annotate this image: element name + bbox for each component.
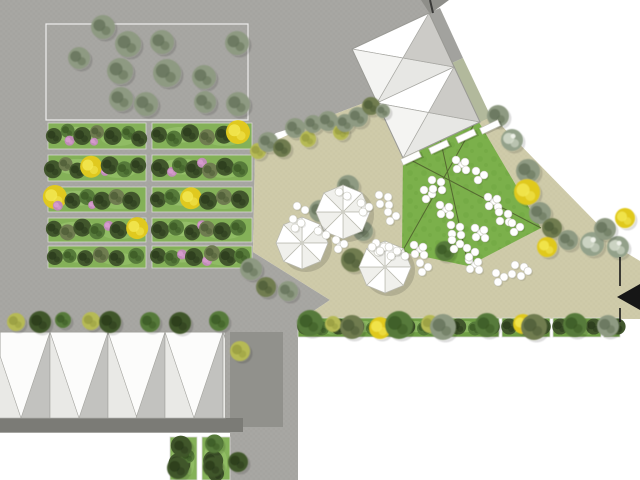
tree-canopy-shade <box>204 101 212 109</box>
tree-canopy-shade <box>218 320 226 328</box>
planting-bed <box>151 155 252 181</box>
shrub-shade <box>136 227 144 235</box>
chair <box>445 203 453 211</box>
shrub-shade <box>53 135 59 141</box>
tree-canopy-shade <box>444 250 452 258</box>
planting-bed <box>151 218 252 242</box>
chair <box>437 210 445 218</box>
tree-canopy-shade <box>181 446 189 454</box>
landscape-site-plan-canvas <box>0 0 640 480</box>
shrub-shade <box>158 134 164 140</box>
tree-canopy-shade <box>212 466 220 474</box>
planting-bed <box>43 185 146 212</box>
chair <box>386 217 394 225</box>
shrub-shade <box>52 169 59 176</box>
chair <box>334 245 342 253</box>
shrub-shade <box>67 130 72 135</box>
shrub-shade <box>191 232 197 238</box>
tree-canopy-shade <box>525 191 535 201</box>
chair <box>466 265 474 273</box>
tree-canopy-shade <box>202 76 211 85</box>
shrub-shade <box>69 255 74 260</box>
chair <box>436 201 444 209</box>
tree-canopy-shade <box>624 217 632 225</box>
chair <box>301 206 309 214</box>
tree-canopy-shade <box>62 319 68 325</box>
shrub-shade <box>157 199 163 205</box>
tree-canopy-shade <box>213 443 220 450</box>
chair <box>293 202 301 210</box>
shrub-shade <box>71 200 77 206</box>
chair <box>453 165 461 173</box>
chair <box>314 227 322 235</box>
chair <box>376 200 384 208</box>
shrub-shade <box>137 165 143 171</box>
shrub-shade <box>171 172 175 176</box>
chair <box>422 195 430 203</box>
chair <box>322 231 330 239</box>
shrub-shade <box>57 205 61 209</box>
tree-canopy-shade <box>160 41 169 50</box>
blossom-highlight <box>511 134 516 139</box>
tree-canopy-shade <box>526 170 535 179</box>
shrub-shade <box>237 227 243 233</box>
tree-canopy-shade <box>165 72 176 83</box>
shrub-shade <box>173 138 179 144</box>
tree-canopy-shade <box>332 323 338 329</box>
tree-canopy-shade <box>532 326 542 336</box>
tree-canopy-shade <box>126 43 136 53</box>
tree-canopy-shade <box>109 321 117 329</box>
planting-bed <box>46 217 148 242</box>
chair <box>289 215 297 223</box>
tree-canopy-shade <box>235 42 244 51</box>
shrub-shade <box>117 229 124 236</box>
shrub-shade <box>100 254 106 260</box>
chair <box>474 258 482 266</box>
tree-canopy-shade <box>237 461 245 469</box>
chair <box>335 188 343 196</box>
blossom-highlight <box>591 237 596 242</box>
tree-canopy-shade <box>257 150 263 156</box>
shrub-shade <box>171 196 177 202</box>
shrub-shade <box>239 169 245 175</box>
shrub-shade <box>96 132 101 137</box>
tree-canopy-shade <box>39 321 47 329</box>
chair <box>429 185 437 193</box>
chair <box>504 210 512 218</box>
chair <box>517 272 525 280</box>
chair <box>508 219 516 227</box>
chair <box>420 251 428 259</box>
chair <box>484 193 492 201</box>
chair <box>401 252 409 260</box>
tree-canopy-shade <box>15 321 22 328</box>
tree-canopy-shade <box>546 246 554 254</box>
shrub-shade <box>175 227 181 233</box>
tree-canopy-shade <box>90 320 97 327</box>
chair <box>448 236 456 244</box>
chair <box>461 158 469 166</box>
chair <box>420 186 428 194</box>
tree-canopy-shade <box>144 103 153 112</box>
shrub-shade <box>67 232 73 238</box>
chair <box>343 192 351 200</box>
canopy-building-south <box>0 332 252 432</box>
tree-canopy-shade <box>236 103 245 112</box>
shrub-shade <box>81 135 88 142</box>
chair <box>472 167 480 175</box>
shrub-shade <box>81 227 88 234</box>
shrub-shade <box>224 166 231 173</box>
chair <box>385 201 393 209</box>
chair <box>492 269 500 277</box>
shrub-shade <box>508 326 514 332</box>
chair <box>418 268 426 276</box>
shrub-shade <box>171 257 177 263</box>
tree-canopy-shade <box>281 147 288 154</box>
shrub-shade <box>193 256 200 263</box>
chair <box>384 208 392 216</box>
chair <box>457 231 465 239</box>
shrub-shade <box>94 141 97 144</box>
chair <box>511 261 519 269</box>
tree-canopy-shade <box>149 321 157 329</box>
chair <box>291 224 299 232</box>
umbrella-pole <box>383 265 387 269</box>
tree-canopy-shade <box>312 123 319 130</box>
tree-canopy-shade <box>287 290 295 298</box>
tree-canopy-shade <box>485 324 494 333</box>
chair <box>475 266 483 274</box>
chair <box>508 270 516 278</box>
shrub-shade <box>179 165 185 171</box>
tree-canopy-shade <box>350 326 359 335</box>
planting-bed <box>47 246 146 268</box>
planting-bed <box>150 245 252 268</box>
tree-canopy-shade <box>177 467 185 475</box>
chair <box>456 223 464 231</box>
shrub-shade <box>223 196 229 202</box>
shrub-shade <box>138 138 144 144</box>
chair <box>495 208 503 216</box>
shrub-shade <box>109 165 116 172</box>
shrub-shade <box>69 140 73 144</box>
chair <box>385 243 393 251</box>
chair <box>510 228 518 236</box>
tree-canopy-shade <box>370 105 377 112</box>
shrub-shade <box>239 199 246 206</box>
chair <box>357 199 365 207</box>
tree-canopy-shade <box>573 324 582 333</box>
shrub-shade <box>206 228 212 234</box>
shrub-shade <box>181 254 185 258</box>
tree-canopy-shade <box>327 120 335 128</box>
tree-canopy-shade <box>551 227 559 235</box>
tree <box>615 208 638 231</box>
tree-canopy-shade <box>344 122 351 129</box>
tree-canopy-shade <box>441 326 451 336</box>
shrub-shade <box>209 170 215 176</box>
chair <box>446 211 454 219</box>
shrub-shade <box>96 231 102 237</box>
shrub-shade <box>189 133 196 140</box>
shrub-shade <box>135 255 141 261</box>
blossom-highlight <box>617 241 622 246</box>
shrub-shade <box>116 257 122 263</box>
shrub-shade <box>236 131 245 140</box>
shrub-shade <box>101 200 108 207</box>
tree-canopy-shade <box>604 228 612 236</box>
tree-canopy-shade <box>511 139 519 147</box>
shrub-shade <box>54 256 60 262</box>
shrub-shade <box>227 256 234 263</box>
chair <box>438 186 446 194</box>
chair <box>450 245 458 253</box>
shrub-shade <box>159 229 166 236</box>
umbrella-pole <box>300 241 304 245</box>
shrub-shade <box>65 164 70 169</box>
shrub-shade <box>90 166 98 174</box>
tree-canopy-shade <box>101 26 110 35</box>
chair <box>462 166 470 174</box>
chair <box>472 233 480 241</box>
shrub-shade <box>211 253 217 259</box>
umbrella-pole <box>341 210 345 214</box>
shrub-shade <box>206 137 212 143</box>
tree-canopy-shade <box>590 243 599 252</box>
shrub-shade <box>159 167 166 174</box>
chair <box>410 241 418 249</box>
tree-canopy-shade <box>567 239 575 247</box>
shrub-shade <box>112 135 119 142</box>
shrub-shade <box>206 261 210 265</box>
tree-canopy-shade <box>307 138 313 144</box>
planting-bed <box>44 155 146 181</box>
chair <box>419 243 427 251</box>
tree-canopy-shade <box>294 127 302 135</box>
chair <box>387 252 395 260</box>
chair <box>494 278 502 286</box>
shrub-shade <box>130 200 137 207</box>
tree-canopy-shade <box>118 70 128 80</box>
tree-canopy-shade <box>308 322 318 332</box>
chair <box>481 234 489 242</box>
tree-canopy-shade <box>382 110 387 115</box>
shrub-shade <box>157 255 163 261</box>
shrub-shade <box>221 230 228 237</box>
shrub-shade <box>207 200 214 207</box>
chair <box>474 176 482 184</box>
chair <box>359 208 367 216</box>
chair <box>524 267 532 275</box>
shrub-shade <box>116 196 122 202</box>
shrub-shade <box>53 228 59 234</box>
tree-canopy-shade <box>78 57 86 65</box>
chair <box>384 193 392 201</box>
shrub-shade <box>84 257 90 263</box>
chair <box>376 247 384 255</box>
chair <box>332 236 340 244</box>
tree-canopy-shade <box>539 212 547 220</box>
shrub-shade <box>123 169 129 175</box>
tree-canopy-shade <box>397 324 408 335</box>
chair <box>428 176 436 184</box>
chair <box>471 224 479 232</box>
chair <box>368 243 376 251</box>
chair <box>416 259 424 267</box>
chair <box>493 195 501 203</box>
site-plan-page <box>0 0 640 480</box>
chair <box>375 191 383 199</box>
chair <box>452 156 460 164</box>
tree-canopy-shade <box>179 322 187 330</box>
tree-canopy-shade <box>265 286 273 294</box>
tree-canopy-shade <box>239 350 247 358</box>
chair <box>480 226 488 234</box>
chair <box>485 202 493 210</box>
chair <box>496 217 504 225</box>
tree-canopy-shade <box>617 246 625 254</box>
chair <box>447 221 455 229</box>
shrub-shade <box>193 169 200 176</box>
planting-bed <box>150 187 252 212</box>
planting-bed <box>46 123 147 149</box>
shrub-shade <box>190 197 198 205</box>
tree-canopy-shade <box>607 325 615 333</box>
chair <box>465 253 473 261</box>
planting-bed <box>151 120 252 149</box>
tree-canopy-shade <box>250 268 258 276</box>
chair <box>463 244 471 252</box>
tree-canopy-shade <box>357 116 365 124</box>
chair <box>411 250 419 258</box>
building-shadow <box>0 418 243 432</box>
chair <box>437 178 445 186</box>
tree-canopy-shade <box>119 98 128 107</box>
